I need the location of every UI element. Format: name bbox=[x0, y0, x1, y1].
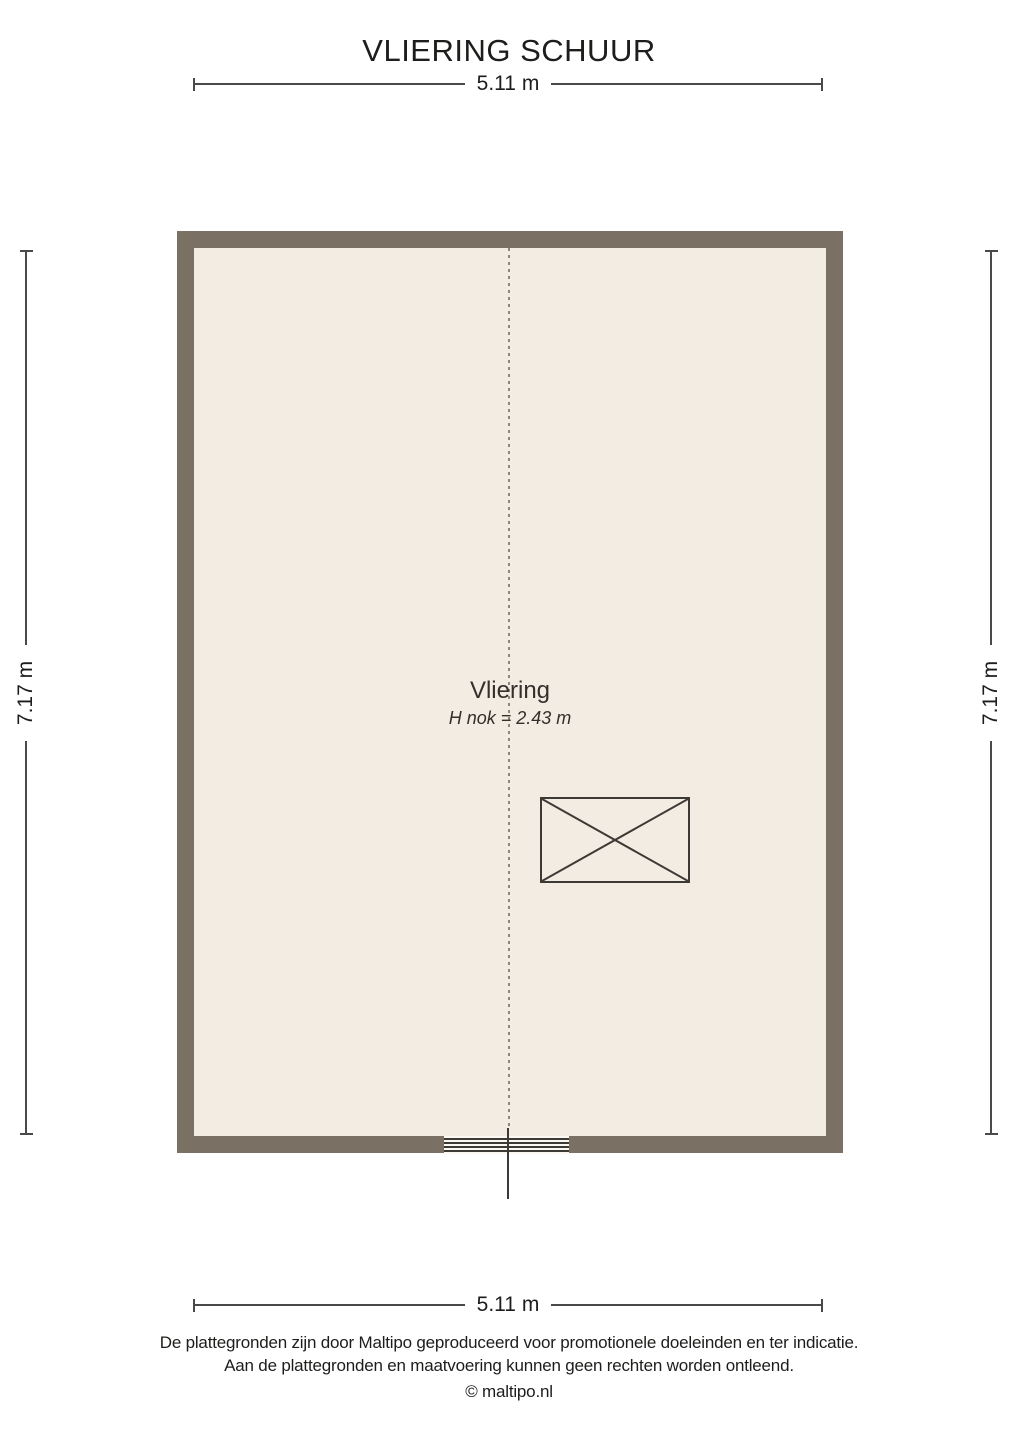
dimension-tick bbox=[985, 1133, 998, 1135]
disclaimer-line-2: Aan de plattegronden en maatvoering kunn… bbox=[0, 1354, 1018, 1377]
dimension-line bbox=[551, 83, 821, 85]
right-dimension: 7.17 m bbox=[980, 250, 1002, 1135]
crossed-box-symbol bbox=[540, 797, 690, 883]
right-dimension-label: 7.17 m bbox=[979, 660, 1003, 724]
disclaimer-line-1: De plattegronden zijn door Maltipo gepro… bbox=[0, 1331, 1018, 1354]
dimension-line bbox=[25, 252, 27, 645]
copyright: © maltipo.nl bbox=[0, 1380, 1018, 1403]
crossed-box-diagonals bbox=[542, 799, 688, 881]
dimension-tick bbox=[20, 1133, 33, 1135]
bottom-dimension-label: 5.11 m bbox=[465, 1294, 552, 1316]
ridge-height-label: H nok = 2.43 m bbox=[410, 708, 610, 729]
left-dimension-label-wrap: 7.17 m bbox=[15, 645, 37, 741]
dimension-tick bbox=[821, 1299, 823, 1312]
top-dimension-label: 5.11 m bbox=[465, 73, 552, 95]
top-dimension: 5.11 m bbox=[193, 73, 823, 95]
floorplan-page: VLIERING SCHUUR 5.11 m 7.17 m 7.17 m Vli… bbox=[0, 0, 1018, 1440]
center-post-line bbox=[507, 1128, 509, 1199]
dimension-line bbox=[551, 1304, 821, 1306]
dimension-line bbox=[195, 83, 465, 85]
dimension-tick bbox=[821, 78, 823, 91]
bottom-dimension: 5.11 m bbox=[193, 1294, 823, 1316]
room-name: Vliering bbox=[410, 677, 610, 705]
dimension-line bbox=[195, 1304, 465, 1306]
left-dimension-label: 7.17 m bbox=[14, 660, 38, 724]
floor-plan: Vliering H nok = 2.43 m bbox=[177, 231, 843, 1153]
dimension-line bbox=[25, 741, 27, 1134]
dimension-line bbox=[990, 252, 992, 645]
page-title: VLIERING SCHUUR bbox=[0, 33, 1018, 69]
room-label: Vliering H nok = 2.43 m bbox=[410, 677, 610, 729]
right-dimension-label-wrap: 7.17 m bbox=[980, 645, 1002, 741]
left-dimension: 7.17 m bbox=[15, 250, 37, 1135]
dimension-line bbox=[990, 741, 992, 1134]
footer-disclaimer: De plattegronden zijn door Maltipo gepro… bbox=[0, 1331, 1018, 1403]
